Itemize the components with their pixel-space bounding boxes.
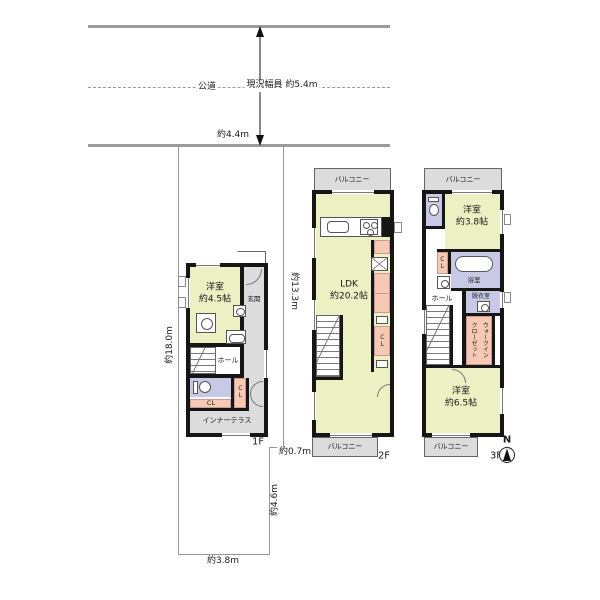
- f3-toilet-bowl: [429, 204, 439, 216]
- f2-balcony-top-label: バルコニー: [335, 175, 370, 184]
- f2-shutter-right: [394, 222, 402, 233]
- f3-room38-label: 洋室 約3.8帖: [456, 205, 488, 228]
- site-dim-east-lower: 約4.6m: [270, 482, 282, 518]
- f1-window-right: [264, 350, 268, 378]
- f3-bath-label: 浴室: [468, 276, 481, 284]
- north-label: N: [503, 434, 511, 447]
- site-boundary-south: [178, 554, 270, 555]
- f1-toilet-bowl: [199, 381, 211, 393]
- f1-toilet-icon: [193, 381, 198, 394]
- f3-balcony-bottom-label: バルコニー: [434, 442, 469, 451]
- f2-ldk-label: LDK 約20.2帖: [330, 279, 368, 302]
- f1-shutter-left-b: [178, 297, 186, 308]
- f2-balcony-bottom-label: バルコニー: [328, 442, 363, 451]
- road-name-label: 公道: [196, 82, 218, 94]
- f3-washbasin-bowl: [441, 280, 449, 288]
- f3-walk-in-closet-label: ウォークイン クローゼット: [468, 322, 491, 358]
- f1-bench-seat: [229, 334, 245, 343]
- f3-closet-label: CL: [438, 256, 446, 270]
- site-dim-east-step: 約0.7m: [277, 447, 313, 459]
- f3-washing-machine-icon: [477, 301, 490, 312]
- f3-balcony-top-label: バルコニー: [446, 175, 481, 184]
- f1-entrance-label: 玄関: [248, 295, 261, 303]
- f1-floor-label: 1F: [252, 436, 264, 449]
- site-dim-south: 約3.8m: [205, 556, 241, 568]
- f1-window-bottom: [222, 433, 250, 437]
- f3-washer-drum: [481, 304, 489, 312]
- f3-room65-label: 洋室 約6.5帖: [445, 386, 477, 409]
- f1-shutter-left-a: [178, 276, 186, 287]
- f3-dressing-label: 脱衣室: [472, 293, 490, 301]
- f1-inner-terrace-label: インナーテラス: [203, 416, 252, 425]
- f1-table-top: [201, 318, 213, 330]
- f1-table-icon: [196, 313, 216, 333]
- road-width-label: 現況幅員 約5.4m: [245, 80, 320, 92]
- f1-bench-icon: [226, 330, 246, 344]
- f1-washbasin-icon: [233, 305, 246, 317]
- road-edge-bottom: [88, 144, 390, 147]
- site-dim-east-upper: 約13.3m: [287, 270, 299, 312]
- f1-closet-b-label: CL: [236, 385, 244, 399]
- f1-washbasin-bowl: [236, 308, 245, 316]
- f2-window-left-c: [312, 392, 316, 420]
- f2-floor-label: 2F: [378, 450, 390, 463]
- f3-window-top: [452, 190, 492, 194]
- f2-closet-label: CL: [378, 334, 386, 348]
- site-boundary-east-upper: [283, 146, 284, 448]
- f2-window-left-b: [312, 300, 316, 330]
- f3-window-right-c: [500, 388, 504, 414]
- f3-hall-label: ホール: [432, 294, 453, 303]
- site-boundary-west: [178, 146, 179, 555]
- f1-hall-label: ホール: [218, 356, 239, 365]
- f3-shutter-right-b: [504, 292, 511, 303]
- site-dim-west: 約18.0m: [165, 324, 177, 366]
- f3-toilet-icon: [428, 197, 439, 202]
- frontage-dim-label: 約4.4m: [215, 130, 251, 142]
- f1-window-left: [186, 278, 190, 308]
- road-centerline: [88, 87, 390, 88]
- floor-plan-canvas: 公道 現況幅員 約5.4m 約4.4m 約18.0m 約13.3m 約0.7m …: [0, 0, 600, 600]
- f3-washbasin-icon: [437, 276, 450, 289]
- road-edge-top: [88, 25, 390, 28]
- f2-building-outline: [312, 190, 394, 437]
- f3-bathtub-icon: [455, 256, 493, 272]
- f2-window-top: [332, 190, 374, 194]
- f3-shutter-right-a: [504, 214, 511, 225]
- f3-window-left: [422, 310, 426, 334]
- f1-western-room-label: 洋室 約4.5帖: [199, 282, 231, 305]
- north-compass-icon: [498, 446, 516, 464]
- f2-window-left-a: [312, 228, 316, 258]
- f1-closet-a-label: CL: [207, 399, 215, 407]
- f1-window-top: [196, 263, 220, 267]
